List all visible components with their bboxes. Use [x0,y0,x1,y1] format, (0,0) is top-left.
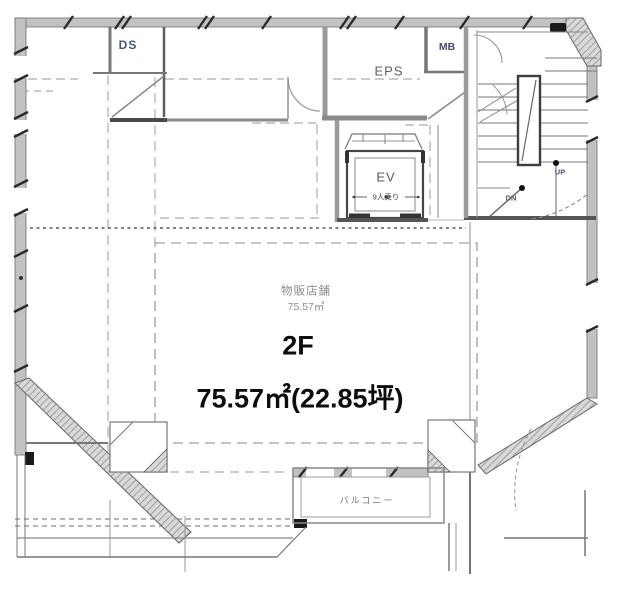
column-marker [550,23,566,32]
winder-line [478,88,516,112]
chamfer-wall-top-right [566,18,601,66]
stair-down-label: DN [506,194,517,202]
total-area-label: 75.57㎡(22.85坪) [196,386,403,413]
staircase [466,27,597,219]
shaft-diagonal [428,90,468,119]
floor-plan: DS EPS MB EV 9人乗り UP DN 物販店舗 75.57㎡ 2F 7… [0,0,622,599]
floorplan-drawing [0,0,622,599]
mailbox-label: MB [439,42,455,53]
elevator-capacity-label: 9人乗り [373,193,400,201]
entry-door [288,77,320,119]
chamfer-wall-bottom-right [478,398,597,474]
corner-columns [110,420,475,472]
eps-label: EPS [374,65,403,78]
core-walls [337,218,596,220]
stair-door-arc [474,35,502,63]
duct-space-label: DS [119,39,138,51]
balcony-label: バルコニー [340,497,395,506]
column-marker [25,452,34,465]
winder-line [480,100,518,122]
stair-up-label: UP [555,168,565,176]
retail-room-area: 75.57㎡ [288,302,325,313]
retail-room-name: 物販店舗 [281,286,331,298]
floor-label: 2F [282,333,314,360]
stair-door-arc-dashed [532,194,588,219]
outer-walls [14,16,601,543]
grid-lines [15,75,466,526]
elevator-label: EV [376,171,395,184]
shaft-diagonal [112,76,164,117]
